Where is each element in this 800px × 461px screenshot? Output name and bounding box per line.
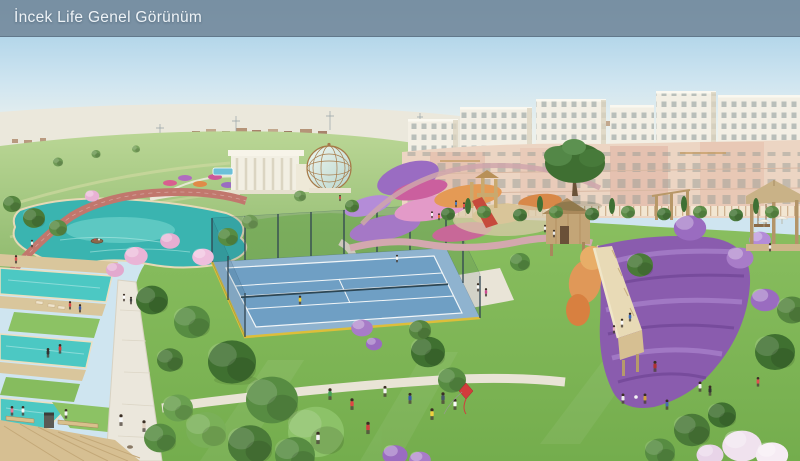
- masterplan-render[interactable]: [0, 0, 800, 461]
- rowboat: [91, 239, 103, 244]
- trash-bin: [44, 414, 54, 428]
- image-caption-bar: İncek Life Genel Görünüm: [0, 0, 800, 37]
- dog: [127, 445, 133, 449]
- terraced-pools: [0, 268, 112, 432]
- image-title: İncek Life Genel Görünüm: [14, 9, 202, 27]
- image-viewer: İncek Life Genel Görünüm: [0, 0, 800, 461]
- football: [634, 395, 638, 399]
